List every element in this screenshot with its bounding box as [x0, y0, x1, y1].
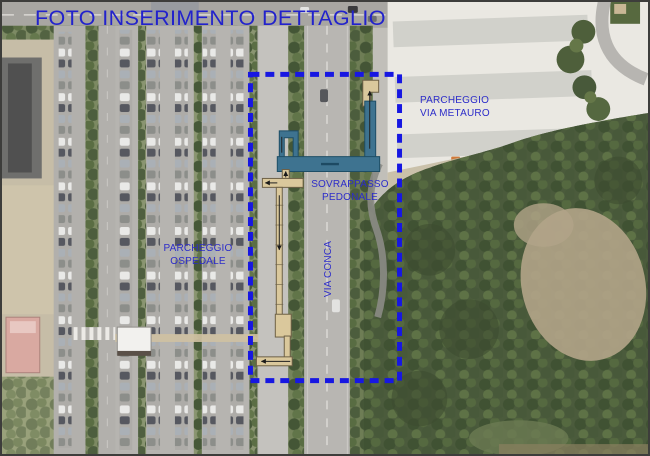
roadside-trees-left: [288, 26, 305, 454]
dark-roof-building: [2, 58, 42, 179]
aerial-photo: [2, 2, 648, 454]
ramp-lower-segment: [284, 336, 290, 358]
via-conca-road: [288, 26, 372, 454]
vehicle: [332, 299, 340, 312]
vehicle: [320, 89, 328, 102]
pink-building: [6, 317, 40, 373]
crosswalk: [74, 327, 116, 340]
south-landing-block: [275, 314, 291, 337]
parking-car-row: [231, 30, 244, 450]
parked-car-row: [59, 32, 72, 448]
parking-tree-row: [138, 26, 146, 454]
parking-tree-row: [194, 26, 202, 454]
parking-car-row: [203, 30, 216, 450]
parking-car-row: [119, 30, 132, 450]
left-street: [54, 26, 118, 454]
parking-car-row: [147, 30, 160, 450]
street-tree-median: [85, 26, 98, 454]
left-edge-blocks: [2, 40, 56, 454]
canopy-structure: [117, 327, 151, 356]
parking-car-row: [175, 30, 188, 450]
sidewalk-band: [258, 26, 290, 454]
photo-inserimento-panel: FOTO INSERIMENTO DETTAGLIO PARCHEGGIO VI…: [0, 0, 650, 456]
